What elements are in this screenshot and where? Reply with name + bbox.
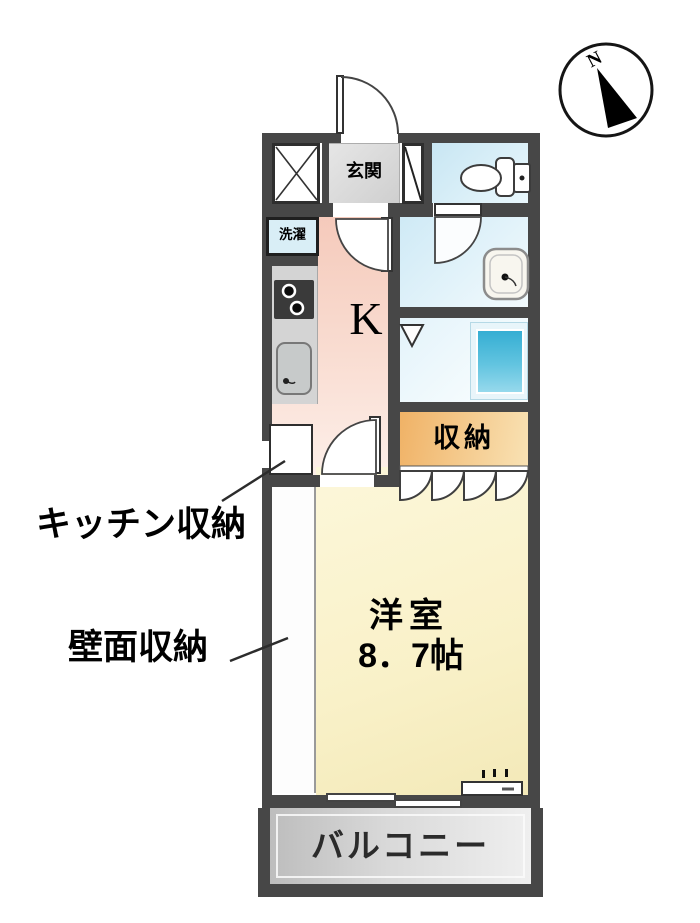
stove — [274, 280, 314, 319]
wall-wash-bath-divider — [400, 307, 528, 318]
wall-above-storage — [388, 402, 528, 412]
floor-plan: N 玄関 洗濯 K 収納 洋室 8．7帖 バルコニー キッチン収納 壁面収納 — [0, 0, 700, 923]
washroom-door-leaf — [434, 203, 482, 216]
kitchen-door-leaf — [381, 217, 393, 272]
entrance-label: 玄関 — [328, 162, 400, 182]
balcony-label: バルコニー — [270, 828, 531, 864]
kitchen-storage-box — [269, 424, 313, 475]
ac-tick-3 — [505, 769, 508, 777]
wall-kitchen-room-nub — [374, 475, 400, 487]
compass-north-label: N — [580, 46, 611, 76]
wall-under-washer — [270, 256, 318, 266]
ac-tick-2 — [493, 769, 496, 777]
western-room-name: 洋室 — [316, 598, 502, 635]
kitchen-door-opening — [333, 203, 388, 217]
pipe-space-box — [272, 143, 320, 204]
entrance-door-opening — [341, 133, 398, 143]
window-sash-left — [326, 793, 396, 802]
balcony-wall-bottom — [258, 884, 543, 897]
shoe-cabinet — [402, 143, 424, 204]
kitchen-storage-annotation: キッチン収納 — [34, 506, 248, 545]
wall-toilet-left — [424, 143, 432, 203]
washroom-floor — [400, 217, 528, 307]
wall-hall-divider — [262, 203, 540, 217]
wall-top — [262, 133, 540, 143]
storage-label: 収納 — [400, 424, 528, 454]
wall-storage-annotation: 壁面収納 — [62, 629, 214, 668]
room-door-opening — [320, 475, 374, 487]
kitchen-label: K — [340, 294, 392, 345]
entrance-door-arc — [341, 77, 398, 134]
wall-right — [528, 133, 540, 808]
ac-tick-1 — [482, 770, 485, 778]
laundry-label: 洗濯 — [266, 228, 319, 243]
entrance-door-leaf — [336, 75, 344, 134]
room-door-leaf — [369, 416, 381, 474]
toilet-room-floor — [432, 143, 528, 203]
bathtub — [476, 329, 524, 394]
ac-unit — [461, 781, 523, 796]
wall-kitchen-room-left — [262, 475, 320, 487]
window-sash-right — [394, 799, 462, 808]
compass-needle — [597, 68, 637, 128]
wall-storage-strip — [272, 487, 316, 793]
western-room-size: 8．7帖 — [316, 638, 506, 675]
